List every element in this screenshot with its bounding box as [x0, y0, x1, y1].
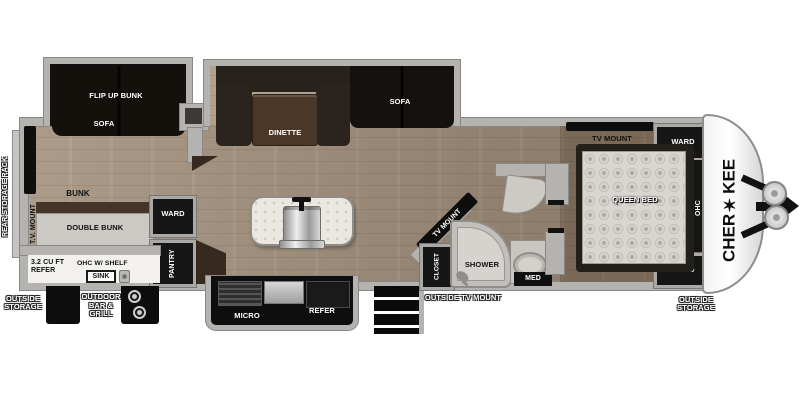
grill-burner-icon	[128, 290, 141, 303]
outside-tv-mount-label: OUTSIDE TV MOUNT	[420, 292, 506, 304]
bedroom-tv-bar	[566, 122, 654, 131]
microwave	[218, 281, 262, 306]
faucet-handle-bar	[292, 197, 311, 202]
double-bunk-label: DOUBLE BUNK	[42, 223, 148, 234]
wall-end-cap	[548, 228, 564, 233]
outside-storage-door	[46, 286, 80, 324]
rear-storage-rack-label: REAR STORAGE RACK	[0, 138, 13, 256]
entry-steps	[374, 286, 424, 334]
outdoor-sink-label: SINK	[86, 271, 116, 282]
rear-tv-bar	[24, 126, 36, 194]
outdoor-refer-label: 3.2 CU FT REFER	[31, 259, 75, 279]
bunkroom-bottom-wall	[20, 246, 160, 255]
refer-label: REFER	[298, 306, 346, 317]
pantry-label: PANTRY	[165, 243, 181, 284]
slide-divider-slot	[185, 108, 202, 124]
queen-bed	[582, 151, 686, 264]
refrigerator	[306, 281, 350, 308]
outside-storage-right-label: OUTSIDE STORAGE	[668, 292, 724, 316]
propane-tank-icon	[762, 181, 787, 206]
range-top	[264, 281, 304, 304]
bunk-ward-label: WARD	[150, 209, 196, 220]
dinette-bench-right	[316, 84, 350, 146]
bedroom-wall-lower	[546, 232, 564, 274]
brand-logo: CHER✶KEE	[712, 138, 746, 282]
propane-tank-icon	[764, 205, 789, 230]
grill-burner-icon	[133, 306, 146, 319]
double-bunk-top-rail	[36, 202, 154, 213]
closet-label: CLOSET	[429, 247, 445, 287]
bunk-sofa-label: SOFA	[82, 119, 126, 129]
dinette-label: DINETTE	[252, 128, 318, 139]
sink-icon	[119, 270, 130, 283]
queen-bed-label: QUEEN BED	[596, 194, 674, 206]
dinette-bench-left	[216, 84, 252, 146]
living-sofa-label: SOFA	[372, 97, 428, 108]
rv-floorplan: REAR STORAGE RACK FLIP UP BUNK SOFA DINE…	[0, 0, 800, 400]
micro-label: MICRO	[223, 311, 271, 322]
outdoor-bar-grill-label: OUTDOOR BAR & GRILL	[80, 289, 122, 323]
shower-label: SHOWER	[456, 260, 508, 271]
med-label: MED	[514, 273, 552, 285]
wall-end-cap	[548, 200, 564, 205]
flip-up-bunk-label: FLIP UP BUNK	[74, 91, 158, 102]
bunk-label: BUNK	[56, 189, 100, 200]
outside-storage-left-label: OUTSIDE STORAGE	[0, 291, 46, 315]
ohc-shelf-label: OHC W/ SHELF	[77, 260, 137, 269]
bedroom-wall-upper	[546, 164, 568, 204]
island-sink-base	[279, 240, 325, 249]
